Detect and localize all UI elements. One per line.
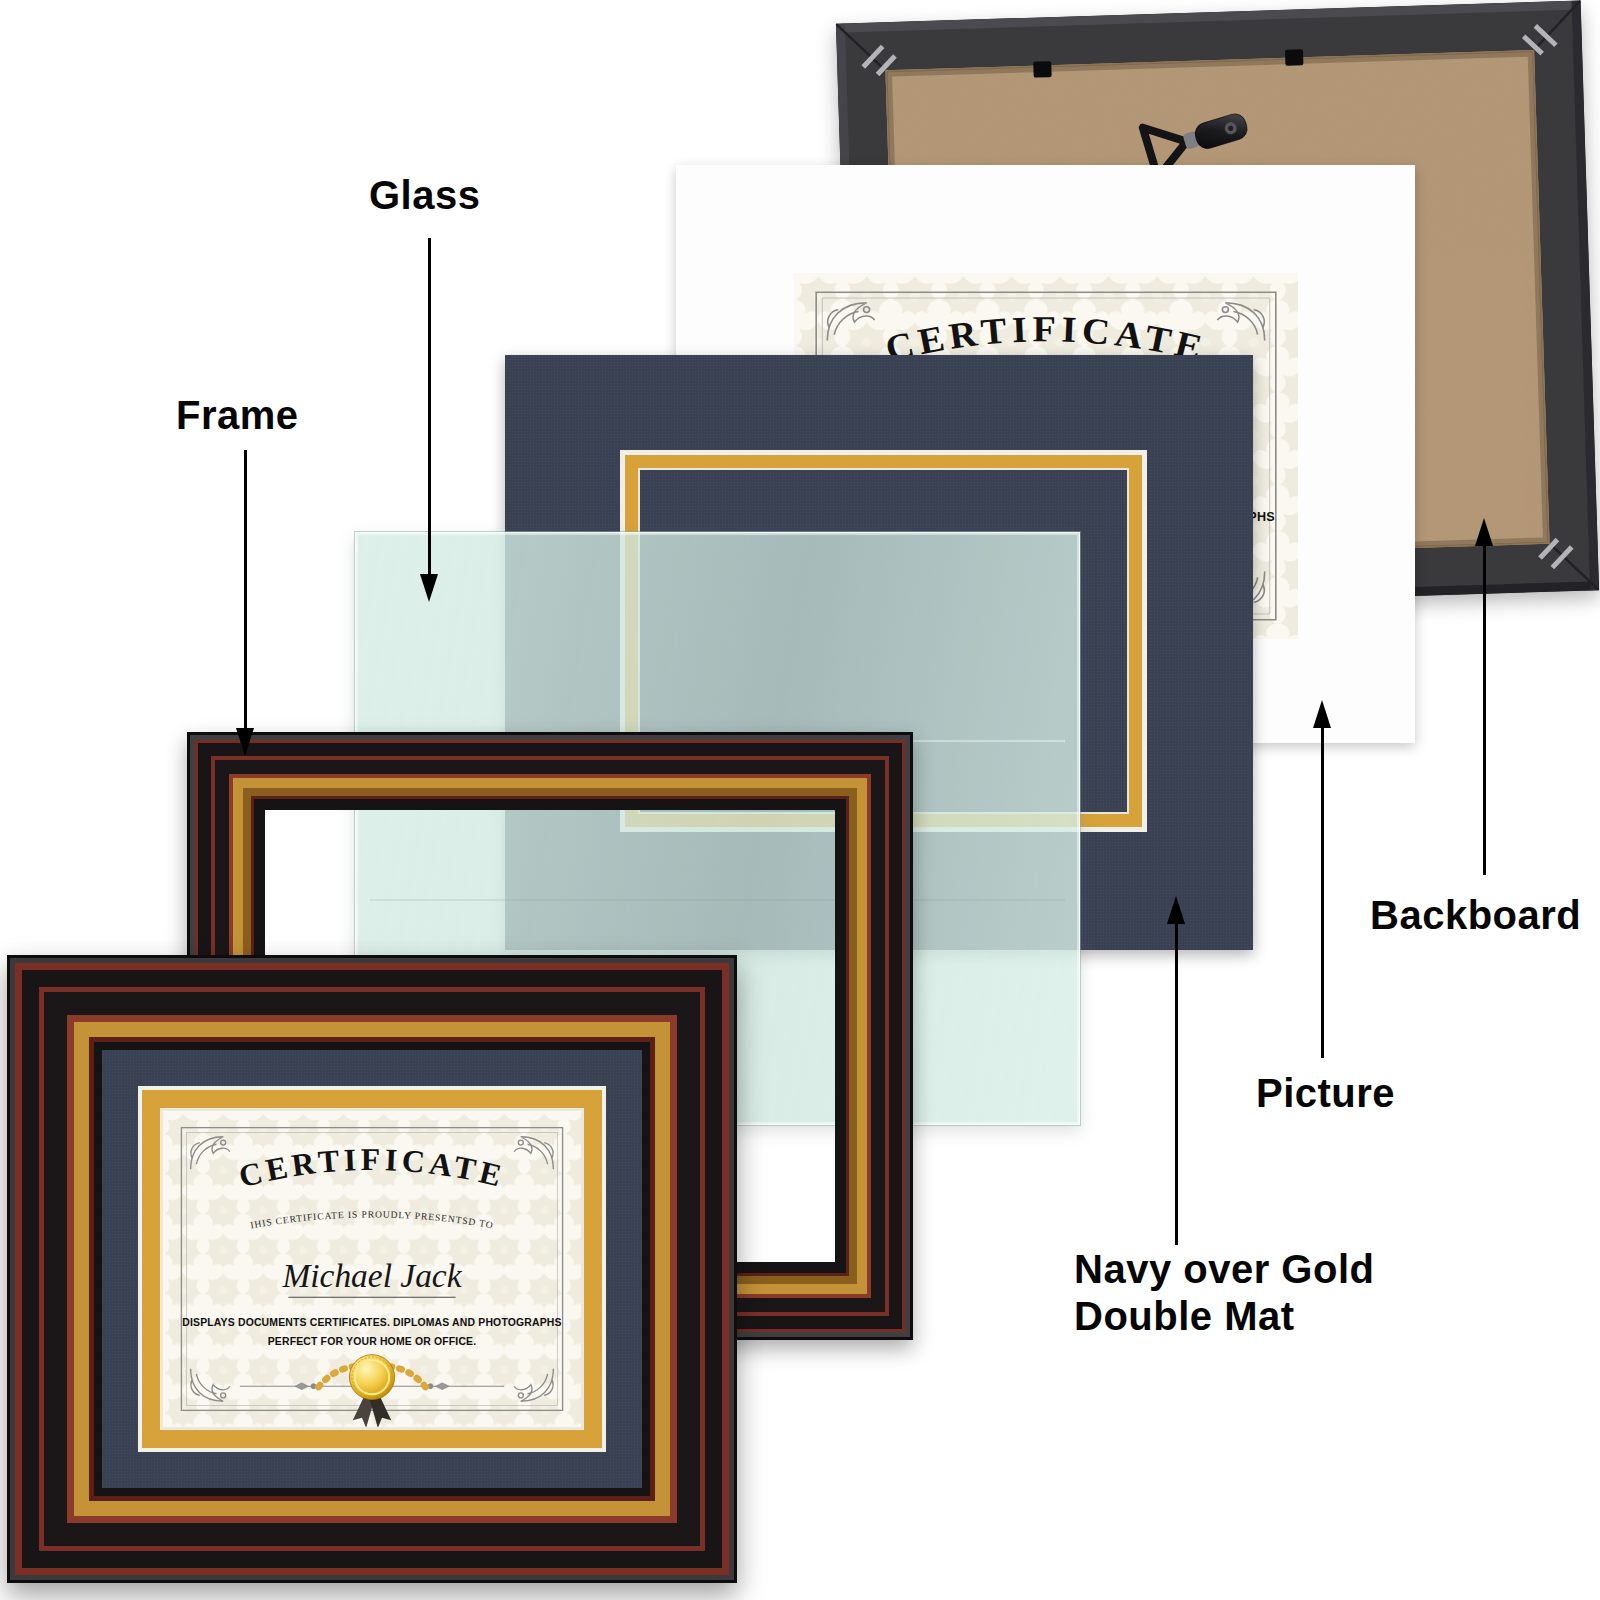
assembled-mat-window: CERTIFICATE IHIS CERTIFICATE IS PROUDLY … <box>138 1086 606 1452</box>
assembled-frame: CERTIFICATE IHIS CERTIFICATE IS PROUDLY … <box>7 955 737 1583</box>
glass-arrow-head-icon <box>420 574 438 602</box>
certificate-body-line2: PERFECT FOR YOUR HOME OR OFFICE. <box>268 1336 477 1347</box>
flex-tab-icon <box>1033 61 1051 78</box>
assembled-gold-liner: CERTIFICATE IHIS CERTIFICATE IS PROUDLY … <box>142 1090 602 1448</box>
certificate-recipient-name: Michael Jack <box>281 1257 462 1294</box>
double-mat-arrow <box>1175 923 1178 1245</box>
certificate: CERTIFICATE IHIS CERTIFICATE IS PROUDLY … <box>163 1111 581 1427</box>
frame-exploded-diagram: CERTIFICATE IHIS CERTIFICATE IS PROUDLY … <box>0 0 1600 1600</box>
picture-label: Picture <box>1256 1070 1395 1117</box>
certificate-body-line1: DISPLAYS DOCUMENTS CERTIFICATES. DIPLOMA… <box>182 1317 561 1328</box>
frame-label: Frame <box>176 392 299 439</box>
glass-label: Glass <box>369 172 480 219</box>
frame-arrow <box>244 450 247 730</box>
backboard-arrow-head-icon <box>1475 518 1493 546</box>
backboard-label: Backboard <box>1370 892 1581 939</box>
picture-arrow-head-icon <box>1313 700 1331 728</box>
double-mat-label-line1: Navy over Gold <box>1074 1246 1374 1293</box>
frame-arrow-head-icon <box>236 728 254 756</box>
assembled-mat-bevel: CERTIFICATE IHIS CERTIFICATE IS PROUDLY … <box>160 1108 584 1430</box>
assembled-mat: CERTIFICATE IHIS CERTIFICATE IS PROUDLY … <box>102 1050 642 1488</box>
double-mat-label: Navy over Gold Double Mat <box>1074 1246 1374 1340</box>
double-mat-label-line2: Double Mat <box>1074 1293 1374 1340</box>
flex-tab-icon <box>1285 49 1303 66</box>
glass-arrow <box>428 238 431 576</box>
medal-icon <box>349 1355 394 1400</box>
picture-arrow <box>1321 727 1324 1058</box>
backboard-arrow <box>1483 545 1486 875</box>
double-mat-arrow-head-icon <box>1167 896 1185 924</box>
